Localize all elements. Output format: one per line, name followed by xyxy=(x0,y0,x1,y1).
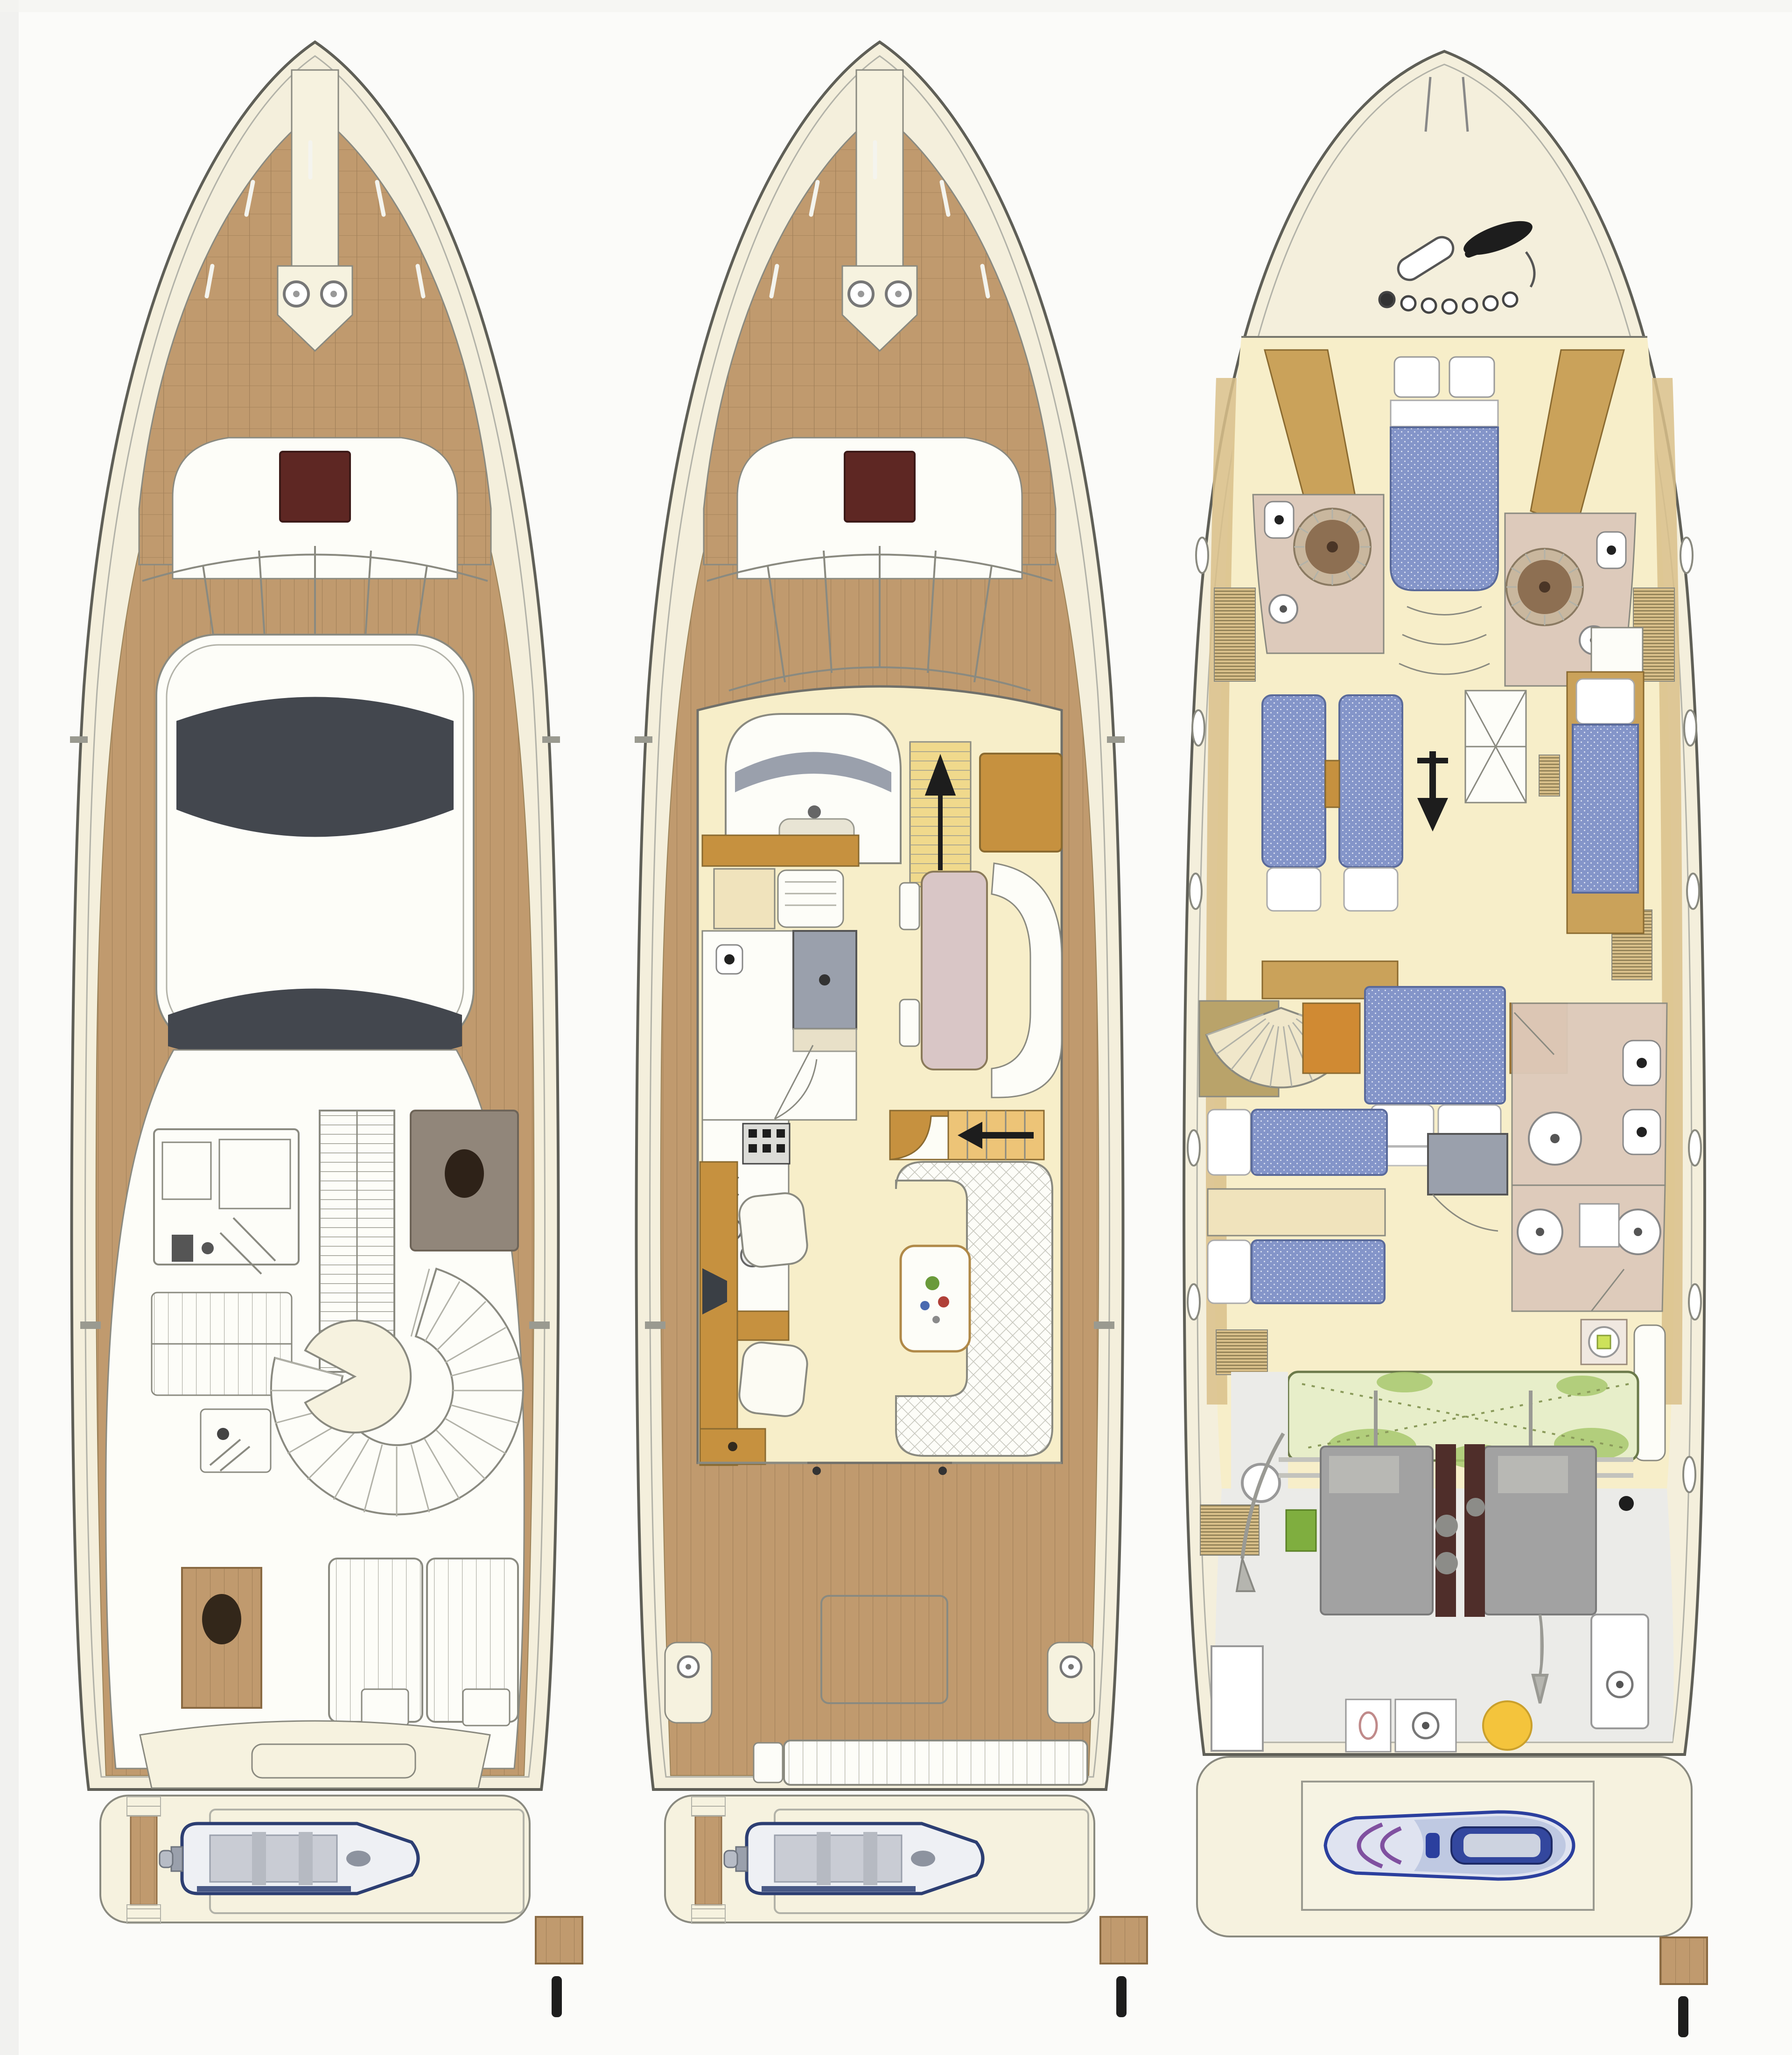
muffler-yellow xyxy=(1483,1701,1532,1750)
main-deck-plan xyxy=(635,42,1147,2017)
lower-deck-plan xyxy=(1184,51,1707,2037)
tv-cabinet-band xyxy=(700,1162,737,1465)
dinette xyxy=(900,863,1062,1097)
side-table-cushion xyxy=(202,1594,241,1644)
seat-pad-cushion xyxy=(445,1149,484,1198)
stern-section xyxy=(100,1796,582,2017)
shower-stall-mid xyxy=(1428,1134,1507,1195)
shower-port xyxy=(1294,509,1371,585)
stern-section xyxy=(665,1796,1147,2017)
dinette-seat-2 xyxy=(900,1000,919,1046)
stern-bench-end-port xyxy=(754,1743,783,1782)
crew-berth-1 xyxy=(1208,1110,1387,1175)
toilet-dot xyxy=(724,954,735,965)
port-counter xyxy=(702,835,859,866)
twin-bed-1 xyxy=(1262,695,1325,911)
scan-edge-top xyxy=(0,0,1792,12)
shower-stbd xyxy=(1506,549,1583,625)
brochure-page xyxy=(0,0,1792,2055)
shower-step xyxy=(793,1029,856,1051)
passerelle xyxy=(1660,1937,1707,1984)
twin-bed-2 xyxy=(1339,695,1402,911)
transom-molding xyxy=(140,1721,490,1788)
jet-ski xyxy=(1325,1812,1574,1879)
crew-cabinet xyxy=(1208,1189,1385,1236)
nightstand xyxy=(1325,761,1339,807)
engine-stbd xyxy=(1464,1444,1596,1617)
garage-platform xyxy=(1197,1757,1692,1936)
wet-bar xyxy=(201,1409,271,1472)
scan-edge-left xyxy=(0,0,19,2055)
wheel xyxy=(808,805,821,818)
vip-pillow-port xyxy=(1394,357,1439,397)
jetski-handlebar xyxy=(1426,1833,1440,1858)
fixture-box xyxy=(1580,1204,1619,1247)
bathroom-stbd-fwd xyxy=(1512,1003,1667,1185)
pump-boxes xyxy=(1346,1699,1456,1752)
stern-bench xyxy=(784,1740,1087,1785)
pillow xyxy=(1576,679,1634,724)
vip-mattress xyxy=(1391,427,1498,590)
dinette-table xyxy=(922,872,987,1069)
mooring-winch-stbd xyxy=(1048,1643,1094,1723)
flybridge-deck-plan xyxy=(70,42,582,2017)
vip-pillow-stbd xyxy=(1449,357,1494,397)
hatch-dot xyxy=(1619,1496,1634,1511)
stern-bollard xyxy=(1678,1996,1688,2037)
jetski-seat-pad xyxy=(1463,1834,1540,1857)
mattress xyxy=(1573,725,1638,893)
open-sunroof xyxy=(176,697,454,837)
vip-sheet xyxy=(1391,400,1498,426)
guest-cabin-stbd xyxy=(1567,628,1644,933)
armchair-2 xyxy=(737,1341,809,1418)
cabinet xyxy=(1591,628,1643,674)
exhaust xyxy=(1464,1444,1485,1617)
bathroom-stbd-aft xyxy=(1512,1185,1665,1311)
pullman-settee xyxy=(778,870,843,927)
battery-box xyxy=(1211,1646,1263,1751)
dinette-seat-1 xyxy=(900,883,919,930)
crew-berth-2 xyxy=(1208,1240,1385,1303)
coffee-table-flowers xyxy=(901,1246,970,1351)
master-mattress xyxy=(1365,987,1505,1104)
sideboard xyxy=(980,754,1062,852)
master-wardrobe-port xyxy=(1303,1003,1360,1073)
washing-machine xyxy=(1581,1320,1627,1364)
port-cabinet xyxy=(714,869,775,929)
generator xyxy=(1591,1615,1648,1728)
wheel xyxy=(202,1242,214,1254)
armchair-1 xyxy=(737,1191,809,1269)
companionway-stairs-up xyxy=(910,742,971,887)
mooring-winch-port xyxy=(665,1643,712,1723)
shower-drain xyxy=(819,974,830,986)
port-head xyxy=(1253,495,1384,653)
instrument-dark xyxy=(172,1235,193,1262)
companionway-stairs-down xyxy=(890,1111,1044,1160)
engine-port xyxy=(1321,1444,1458,1617)
cabinet-dot xyxy=(728,1442,737,1451)
helm-console xyxy=(154,1129,299,1274)
day-head xyxy=(702,931,856,1120)
deck-plans-figure xyxy=(0,0,1792,2055)
